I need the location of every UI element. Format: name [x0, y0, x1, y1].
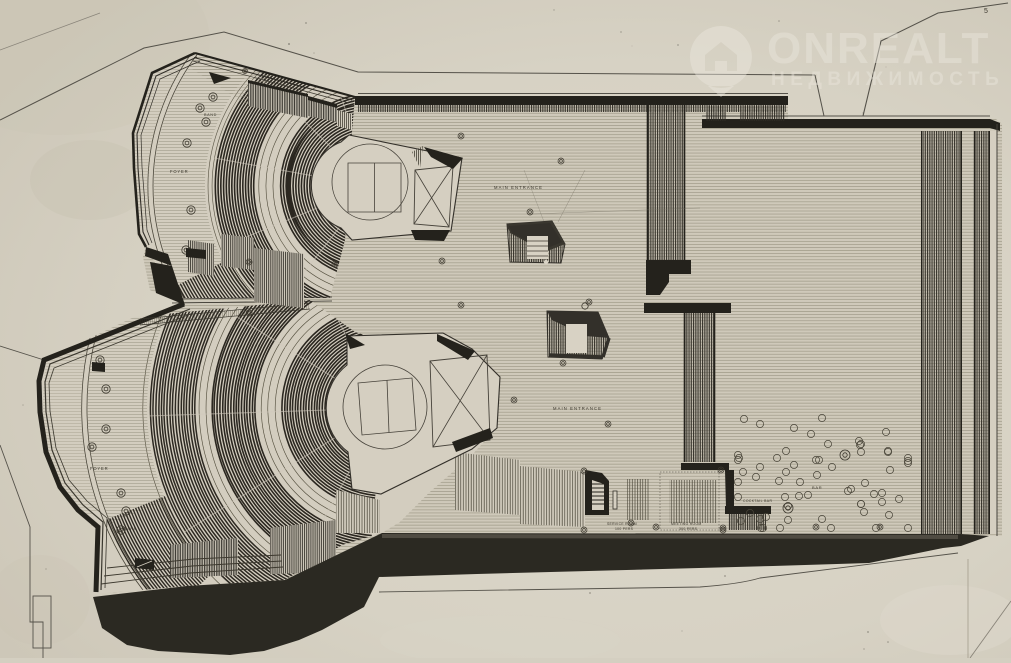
svg-text:300 PERS: 300 PERS — [679, 527, 698, 531]
svg-text:ONREALT: ONREALT — [767, 24, 990, 73]
svg-text:MAIN ENTRANCE: MAIN ENTRANCE — [553, 406, 602, 411]
svg-text:FOYER: FOYER — [170, 169, 188, 174]
svg-text:MAIN ENTRANCE: MAIN ENTRANCE — [494, 185, 543, 190]
svg-text:MEETING ROOM: MEETING ROOM — [671, 522, 702, 526]
svg-text:5: 5 — [984, 8, 988, 15]
svg-text:НЕДВИЖИМОСТЬ: НЕДВИЖИМОСТЬ — [771, 69, 1004, 90]
svg-text:FOYER: FOYER — [90, 466, 108, 471]
svg-text:BAND: BAND — [204, 113, 217, 117]
svg-text:BAR: BAR — [812, 485, 822, 490]
svg-text:SERVICE ROOM: SERVICE ROOM — [607, 522, 637, 526]
svg-text:BARS: BARS — [124, 527, 137, 531]
svg-text:100 PERS: 100 PERS — [615, 527, 634, 531]
svg-text:COCKTAIL BAR: COCKTAIL BAR — [743, 499, 772, 503]
